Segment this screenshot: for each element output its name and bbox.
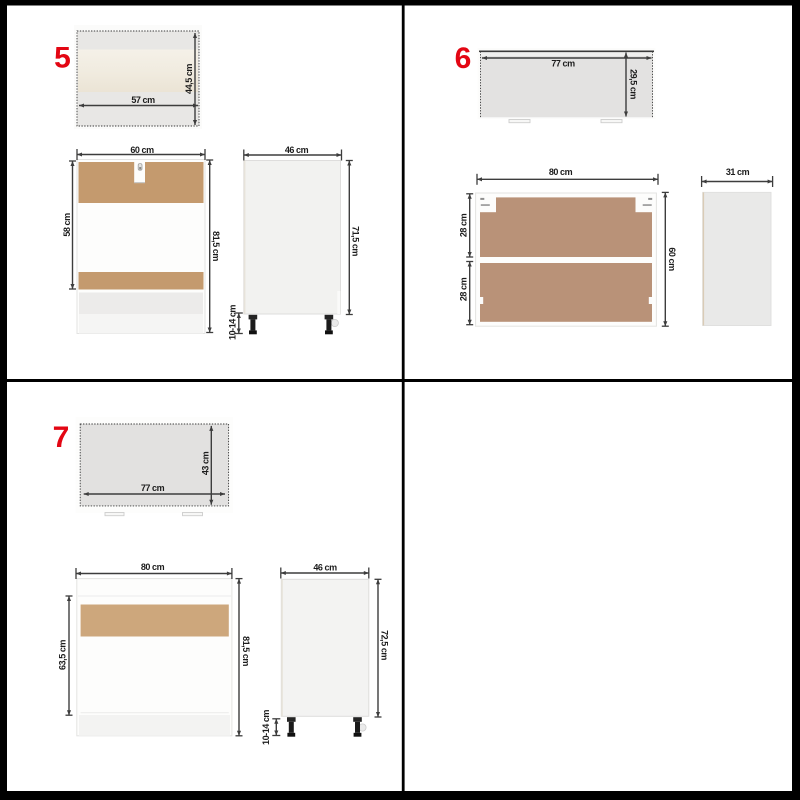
svg-text:63,5 cm: 63,5 cm [58, 640, 68, 670]
svg-text:80 cm: 80 cm [549, 167, 573, 177]
svg-text:7: 7 [53, 421, 70, 454]
svg-text:81,5 cm: 81,5 cm [241, 636, 251, 666]
svg-text:72,5 cm: 72,5 cm [380, 630, 390, 660]
svg-text:31 cm: 31 cm [726, 167, 750, 177]
svg-text:77 cm: 77 cm [141, 483, 165, 493]
svg-text:80 cm: 80 cm [141, 562, 165, 572]
svg-text:43 cm: 43 cm [200, 451, 210, 475]
svg-text:10-14 cm: 10-14 cm [228, 305, 238, 340]
svg-text:46 cm: 46 cm [313, 563, 337, 573]
svg-text:71,5 cm: 71,5 cm [351, 226, 361, 256]
svg-text:57 cm: 57 cm [131, 95, 155, 105]
svg-text:5: 5 [54, 42, 71, 75]
svg-text:60 cm: 60 cm [130, 145, 154, 155]
svg-text:44,5 cm: 44,5 cm [184, 64, 194, 94]
svg-text:77 cm: 77 cm [551, 59, 575, 69]
svg-text:28 cm: 28 cm [459, 213, 469, 237]
svg-text:29,5 cm: 29,5 cm [629, 69, 639, 99]
svg-text:81,5 cm: 81,5 cm [211, 231, 221, 261]
svg-text:58 cm: 58 cm [62, 213, 72, 237]
svg-text:46 cm: 46 cm [285, 145, 309, 155]
svg-text:60 cm: 60 cm [667, 247, 677, 271]
svg-text:28 cm: 28 cm [459, 277, 469, 301]
svg-text:10-14 cm: 10-14 cm [261, 710, 271, 745]
svg-text:6: 6 [455, 42, 472, 75]
